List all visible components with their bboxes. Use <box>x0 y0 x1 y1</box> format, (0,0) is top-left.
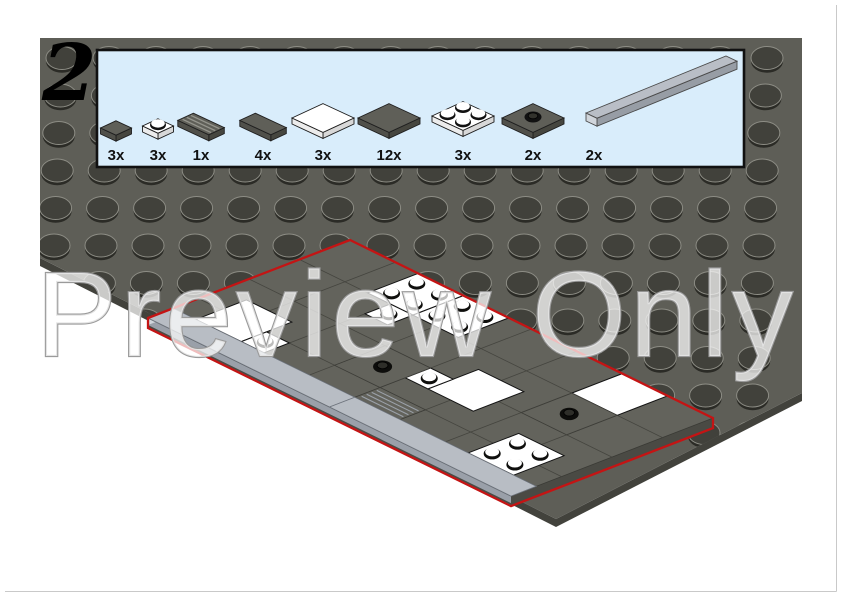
baseplate-stud <box>749 84 781 110</box>
baseplate-stud <box>746 159 778 185</box>
watermark: Preview Only <box>36 246 797 382</box>
baseplate-stud <box>218 422 250 448</box>
baseplate-stud <box>87 197 119 223</box>
baseplate-stud <box>463 197 495 223</box>
baseplate-stud <box>369 197 401 223</box>
baseplate-stud <box>275 197 307 223</box>
baseplate-stud <box>751 47 783 73</box>
baseplate-stud <box>416 197 448 223</box>
part-qty-label: 1x <box>193 147 210 164</box>
baseplate-stud <box>312 422 344 448</box>
baseplate-stud <box>40 197 72 223</box>
baseplate-stud <box>43 122 75 148</box>
baseplate-stud <box>745 197 777 223</box>
part-qty-label: 3x <box>315 147 332 164</box>
baseplate-stud <box>41 159 73 185</box>
baseplate-stud <box>124 422 156 448</box>
part-qty-label: 3x <box>108 147 125 164</box>
part-qty-label: 3x <box>150 147 167 164</box>
baseplate-stud <box>228 197 260 223</box>
baseplate-stud <box>265 422 297 448</box>
baseplate-stud <box>737 384 769 410</box>
part-qty-label: 2x <box>525 147 542 164</box>
baseplate-stud <box>748 122 780 148</box>
baseplate-stud <box>79 384 111 410</box>
baseplate-stud <box>220 384 252 410</box>
part-qty-label: 2x <box>586 147 603 164</box>
baseplate-stud <box>30 422 62 448</box>
baseplate-stud <box>698 197 730 223</box>
baseplate-stud <box>77 422 109 448</box>
instruction-page: 3x 3x 1x 4x 3x 12x 3x 2x 2x 2 Preview On… <box>0 0 842 596</box>
baseplate-stud <box>171 422 203 448</box>
step-number: 2 <box>41 28 96 119</box>
baseplate-stud <box>126 384 158 410</box>
baseplate-stud <box>322 197 354 223</box>
part-qty-label: 4x <box>255 147 272 164</box>
baseplate-stud <box>173 384 205 410</box>
baseplate-stud <box>690 384 722 410</box>
baseplate-stud <box>557 197 589 223</box>
baseplate-stud <box>181 197 213 223</box>
baseplate-stud <box>510 197 542 223</box>
baseplate-stud <box>651 197 683 223</box>
instruction-scene: 3x 3x 1x 4x 3x 12x 3x 2x 2x 2 Preview On… <box>0 0 842 596</box>
part-qty-label: 12x <box>376 147 402 164</box>
part-qty-label: 3x <box>455 147 472 164</box>
baseplate-stud <box>32 384 64 410</box>
parts-box: 3x 3x 1x 4x 3x 12x 3x 2x 2x <box>97 50 744 167</box>
baseplate-stud <box>134 197 166 223</box>
baseplate-stud <box>604 197 636 223</box>
